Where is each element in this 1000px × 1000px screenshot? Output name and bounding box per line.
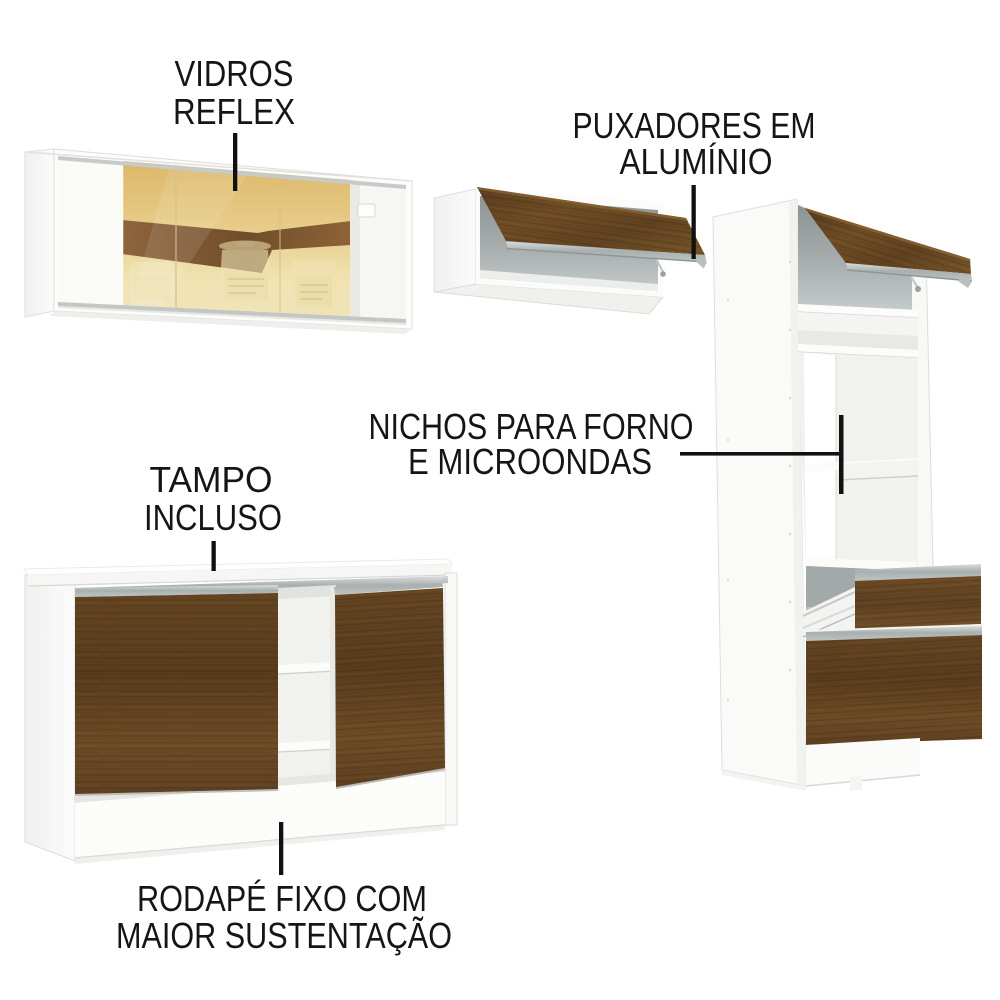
svg-text:MAIOR SUSTENTAÇÃO: MAIOR SUSTENTAÇÃO: [116, 915, 452, 956]
svg-text:TAMPO: TAMPO: [150, 459, 273, 500]
svg-text:ALUMÍNIO: ALUMÍNIO: [620, 141, 773, 182]
svg-text:INCLUSO: INCLUSO: [144, 497, 282, 538]
svg-text:VIDROS: VIDROS: [175, 53, 294, 94]
svg-text:RODAPÉ FIXO COM: RODAPÉ FIXO COM: [137, 878, 427, 919]
svg-text:E MICROONDAS: E MICROONDAS: [408, 441, 652, 482]
svg-text:REFLEX: REFLEX: [173, 91, 295, 132]
svg-text:PUXADORES EM: PUXADORES EM: [573, 105, 816, 146]
